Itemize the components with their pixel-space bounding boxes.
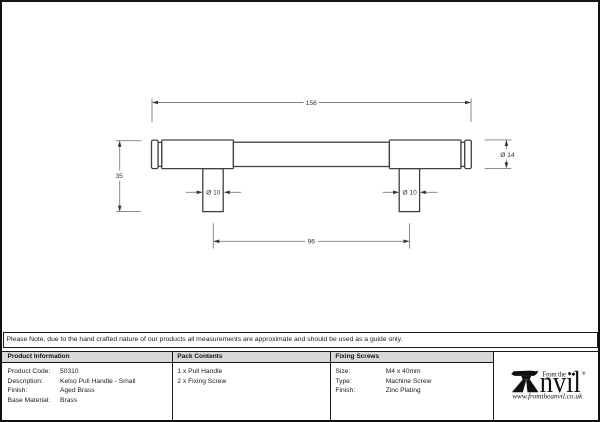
svg-text:®: ®: [582, 370, 586, 377]
svg-text:Ø 10: Ø 10: [403, 190, 418, 197]
svg-text:156: 156: [306, 100, 317, 107]
svg-text:35: 35: [116, 173, 124, 180]
svg-text:Ø 14: Ø 14: [500, 152, 515, 159]
svg-text:96: 96: [308, 239, 316, 246]
svg-text:From the: From the: [543, 372, 567, 379]
svg-text:www.fromtheanvil.co.uk: www.fromtheanvil.co.uk: [512, 391, 583, 400]
svg-text:Ø 10: Ø 10: [206, 190, 221, 197]
